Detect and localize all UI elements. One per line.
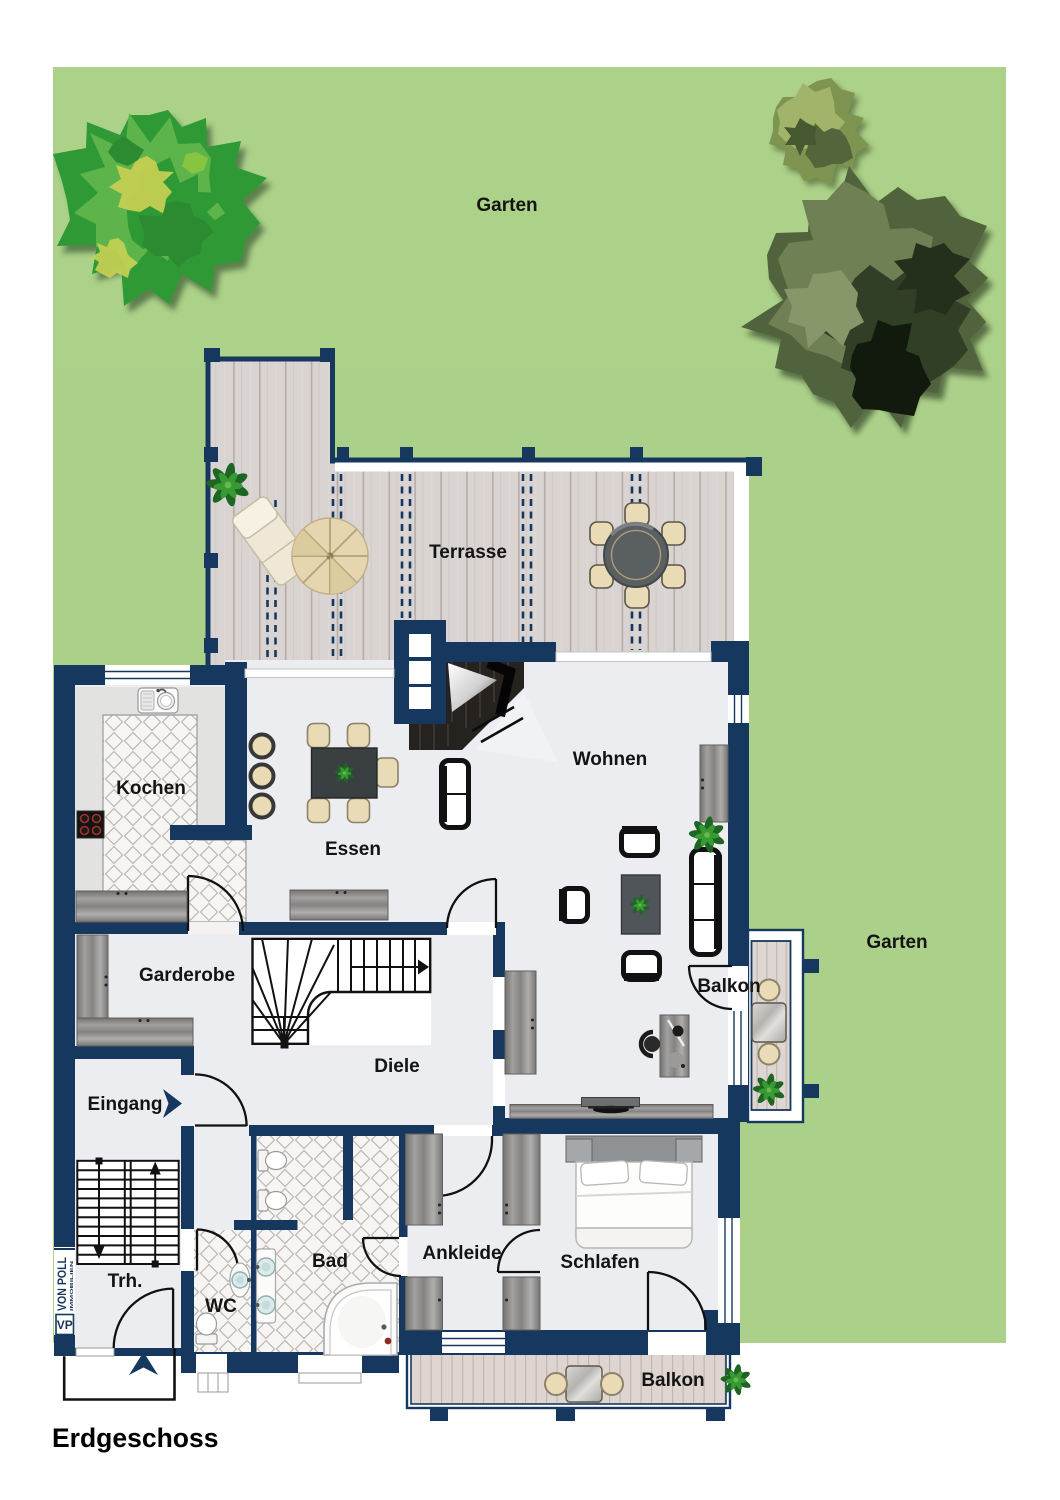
svg-text:Essen: Essen [325,839,381,860]
svg-text:Kochen: Kochen [116,778,186,799]
svg-text:WC: WC [205,1296,237,1317]
svg-text:Garten: Garten [476,195,537,216]
svg-text:VON POLL: VON POLL [57,1257,69,1311]
svg-text:Garten: Garten [866,932,927,953]
svg-text:Wohnen: Wohnen [573,749,648,770]
svg-text:Ankleide: Ankleide [422,1243,501,1264]
svg-text:Terrasse: Terrasse [429,542,507,563]
svg-text:Erdgeschoss: Erdgeschoss [52,1423,218,1453]
svg-text:Bad: Bad [312,1251,348,1272]
svg-text:IMMOBILIEN: IMMOBILIEN [69,1260,74,1311]
svg-text:Diele: Diele [374,1056,419,1077]
svg-text:Balkon: Balkon [697,976,760,997]
svg-text:Garderobe: Garderobe [139,965,235,986]
svg-text:Balkon: Balkon [641,1370,704,1391]
svg-text:Eingang: Eingang [88,1094,163,1115]
svg-text:Trh.: Trh. [108,1271,143,1292]
svg-text:Schlafen: Schlafen [560,1252,639,1273]
svg-text:VP: VP [57,1318,73,1332]
